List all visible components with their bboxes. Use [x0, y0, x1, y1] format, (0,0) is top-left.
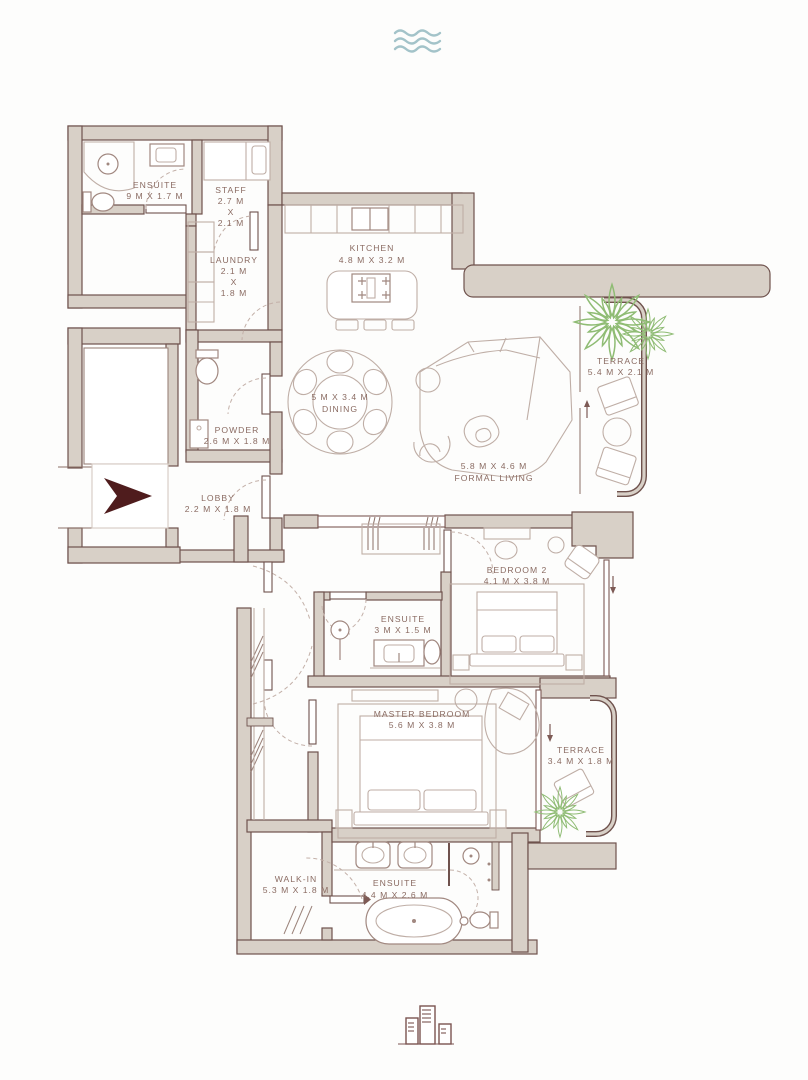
label-lobby: LOBBY 2.2 M X 1.8 M: [185, 493, 252, 514]
svg-text:5.3 M X 1.8 M: 5.3 M X 1.8 M: [263, 885, 330, 895]
dining-set: [288, 350, 392, 454]
svg-text:5.4 M X 2.1 M: 5.4 M X 2.1 M: [588, 367, 655, 377]
buildings-icon: [398, 1006, 454, 1044]
svg-text:3 M X 1.5 M: 3 M X 1.5 M: [374, 625, 431, 635]
svg-text:TERRACE: TERRACE: [557, 745, 605, 755]
svg-text:LAUNDRY: LAUNDRY: [210, 255, 258, 265]
corridor-closet: [362, 524, 440, 554]
svg-text:2.1 M: 2.1 M: [221, 266, 248, 276]
svg-text:X: X: [228, 207, 235, 217]
svg-text:2.1 M: 2.1 M: [218, 218, 245, 228]
svg-text:5.8 M X 4.6 M: 5.8 M X 4.6 M: [461, 461, 528, 471]
label-bedroom-2: BEDROOM 2 4.1 M X 3.8 M: [484, 565, 551, 586]
svg-text:2.7 M: 2.7 M: [218, 196, 245, 206]
svg-text:BEDROOM 2: BEDROOM 2: [487, 565, 548, 575]
svg-text:4.1 M X 3.8 M: 4.1 M X 3.8 M: [484, 576, 551, 586]
label-ensuite-bedroom-2: ENSUITE 3 M X 1.5 M: [374, 614, 431, 635]
svg-text:4.8 M X 3.2 M: 4.8 M X 3.2 M: [339, 255, 406, 265]
svg-text:2.2 M X 1.8 M: 2.2 M X 1.8 M: [185, 504, 252, 514]
waves-icon: [395, 31, 440, 52]
terrace-2-furniture: [535, 768, 595, 837]
svg-text:9 M X 1.7 M: 9 M X 1.7 M: [126, 191, 183, 201]
living-furniture: [414, 337, 572, 477]
label-walk-in: WALK-IN 5.3 M X 1.8 M: [263, 874, 330, 895]
svg-text:5 M X 3.4 M: 5 M X 3.4 M: [311, 392, 368, 402]
svg-text:WALK-IN: WALK-IN: [275, 874, 318, 884]
label-powder: POWDER 2.6 M X 1.8 M: [204, 425, 271, 446]
svg-text:3.4 M X 1.8 M: 3.4 M X 1.8 M: [548, 756, 615, 766]
floor-plan-page: ENSUITE 9 M X 1.7 M STAFF 2.7 M X 2.1 M …: [0, 0, 808, 1080]
svg-text:ENSUITE: ENSUITE: [373, 878, 417, 888]
svg-text:STAFF: STAFF: [215, 185, 247, 195]
svg-text:MASTER BEDROOM: MASTER BEDROOM: [374, 709, 471, 719]
kitchen-furniture: [285, 205, 463, 330]
label-ensuite-master: ENSUITE 4.4 M X 2.6 M: [362, 878, 429, 900]
elevator-lobby: [84, 348, 168, 528]
svg-text:X: X: [231, 277, 238, 287]
svg-text:FORMAL LIVING: FORMAL LIVING: [454, 473, 533, 483]
svg-text:5.6 M X 3.8 M: 5.6 M X 3.8 M: [389, 720, 456, 730]
svg-text:ENSUITE: ENSUITE: [381, 614, 425, 624]
walls: [68, 126, 770, 954]
svg-text:ENSUITE: ENSUITE: [133, 180, 177, 190]
label-terrace-2: TERRACE 3.4 M X 1.8 M: [548, 745, 615, 766]
svg-text:4.4 M X 2.6 M: 4.4 M X 2.6 M: [362, 890, 429, 900]
staff-room-furniture: [204, 142, 270, 180]
ensuite-staff-fixtures: [83, 142, 184, 212]
label-kitchen: KITCHEN 4.8 M X 3.2 M: [339, 243, 406, 265]
terrace-1-furniture: [595, 376, 639, 485]
bedroom-2-furniture: [450, 528, 601, 684]
svg-text:TERRACE: TERRACE: [597, 356, 645, 366]
label-terrace-1: TERRACE 5.4 M X 2.1 M: [588, 356, 655, 377]
kitchen-island: [327, 271, 417, 330]
label-laundry: LAUNDRY 2.1 M X 1.8 M: [210, 255, 258, 298]
svg-text:POWDER: POWDER: [215, 425, 260, 435]
svg-text:2.6 M X 1.8 M: 2.6 M X 1.8 M: [204, 436, 271, 446]
svg-text:DINING: DINING: [322, 404, 358, 414]
label-staff: STAFF 2.7 M X 2.1 M: [215, 185, 247, 228]
floor-plan-canvas: ENSUITE 9 M X 1.7 M STAFF 2.7 M X 2.1 M …: [0, 0, 808, 1080]
svg-text:KITCHEN: KITCHEN: [350, 243, 395, 253]
svg-text:LOBBY: LOBBY: [201, 493, 235, 503]
label-ensuite-staff: ENSUITE 9 M X 1.7 M: [126, 180, 183, 201]
svg-text:1.8 M: 1.8 M: [221, 288, 248, 298]
